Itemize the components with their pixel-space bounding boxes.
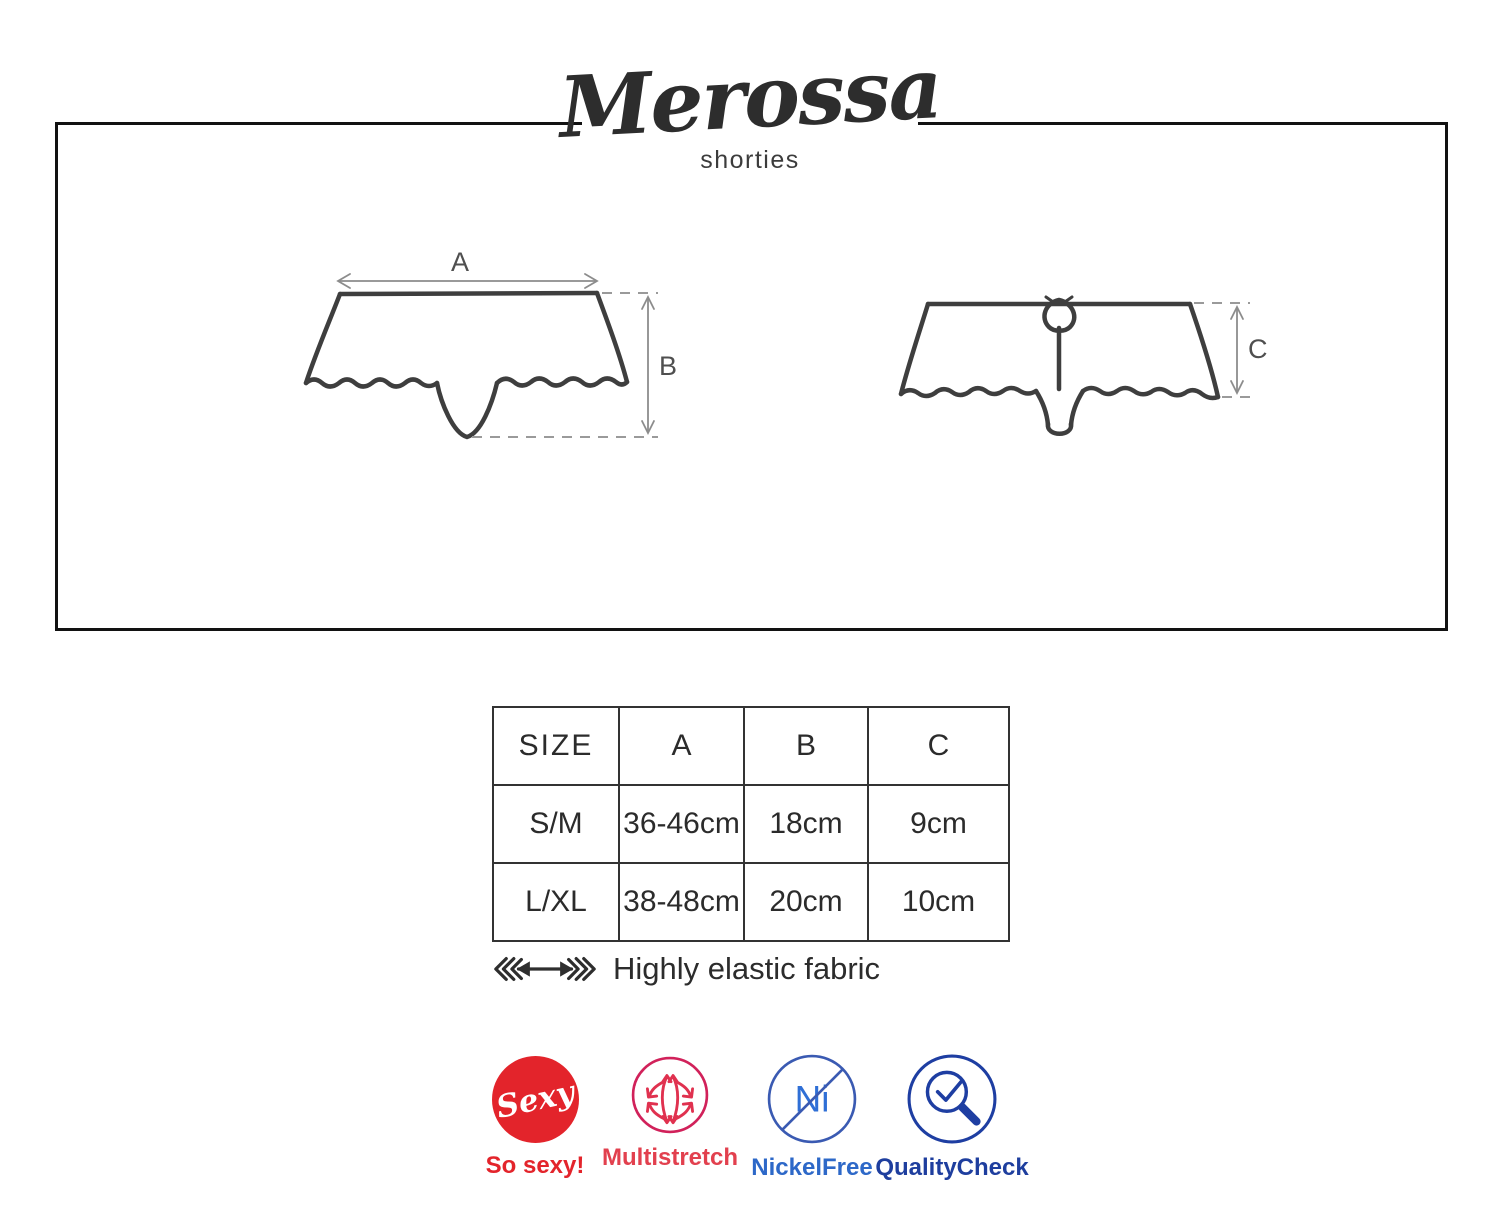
header-c: C (868, 707, 1009, 785)
badge-label: So sexy! (486, 1152, 585, 1180)
table-row: L/XL 38-48cm 20cm 10cm (493, 863, 1009, 941)
multistretch-icon (630, 1055, 710, 1135)
table-cell: 10cm (868, 863, 1009, 941)
badge-label: QualityCheck (875, 1154, 1028, 1182)
front-view-drawing: A B (306, 247, 677, 437)
table-cell: 18cm (744, 785, 868, 863)
table-cell: 36-46cm (619, 785, 744, 863)
dimension-label-a: A (451, 247, 469, 277)
table-cell: 38-48cm (619, 863, 744, 941)
dimension-label-b: B (659, 351, 677, 381)
sexy-circle-icon: Sexy (492, 1056, 579, 1143)
table-cell: S/M (493, 785, 619, 863)
badge-so-sexy: Sexy So sexy! (467, 1056, 603, 1180)
nickel-free-icon: Ni (766, 1053, 858, 1145)
back-view-drawing: C (901, 297, 1268, 434)
table-header-row: SIZE A B C (493, 707, 1009, 785)
brand-logo: Merossa shorties (582, 52, 918, 190)
table-cell: 20cm (744, 863, 868, 941)
badge-quality-check: QualityCheck (884, 1053, 1020, 1182)
header-a: A (619, 707, 744, 785)
size-diagram: A B C (55, 122, 1445, 628)
header-size: SIZE (493, 707, 619, 785)
table-cell: L/XL (493, 863, 619, 941)
dimension-label-c: C (1248, 334, 1268, 364)
stretch-arrow-icon (493, 955, 597, 983)
brand-name: Merossa (557, 42, 943, 154)
table-cell: 9cm (868, 785, 1009, 863)
brand-subtitle: shorties (700, 146, 800, 175)
badge-label: Multistretch (602, 1144, 738, 1172)
badge-nickel-free: Ni NickelFree (744, 1053, 880, 1182)
badge-label: NickelFree (751, 1154, 872, 1182)
elastic-fabric-note: Highly elastic fabric (493, 951, 880, 987)
size-table: SIZE A B C S/M 36-46cm 18cm 9cm L/XL 38-… (492, 706, 1010, 942)
header-b: B (744, 707, 868, 785)
table-row: S/M 36-46cm 18cm 9cm (493, 785, 1009, 863)
badge-multistretch: Multistretch (602, 1055, 738, 1172)
sexy-circle-text: Sexy (493, 1074, 577, 1126)
elastic-fabric-label: Highly elastic fabric (613, 951, 880, 987)
quality-check-icon (906, 1053, 998, 1145)
